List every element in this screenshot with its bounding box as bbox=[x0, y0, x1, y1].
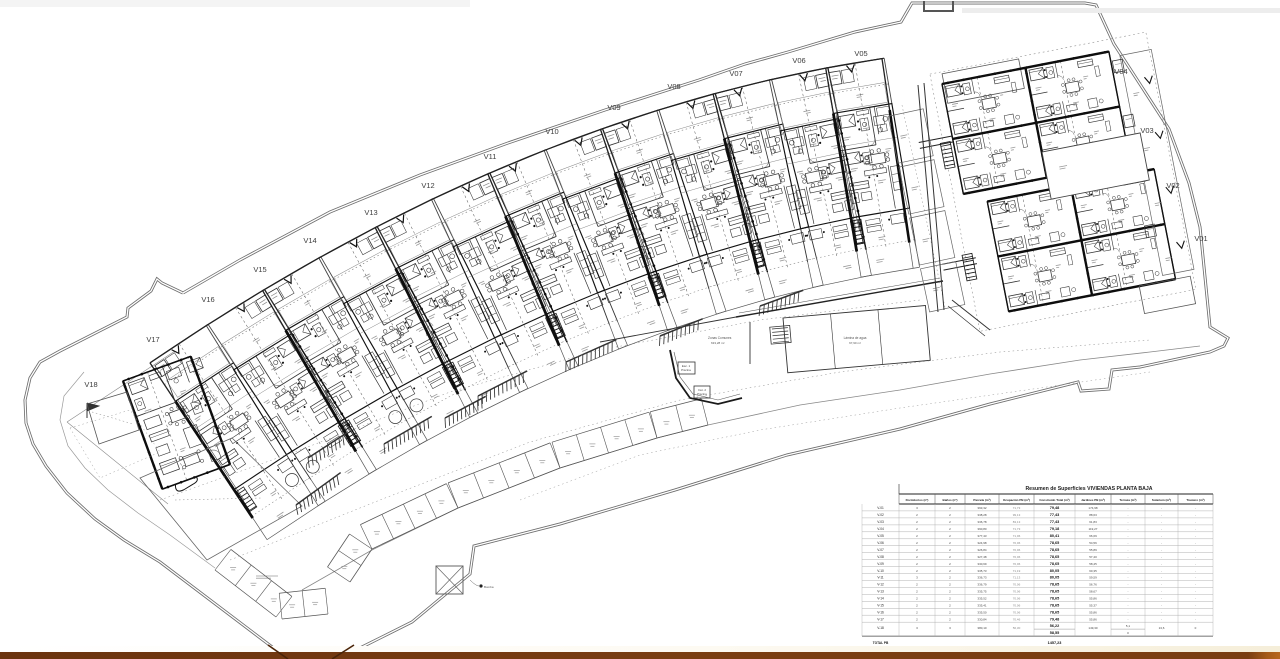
svg-text:119,27: 119,27 bbox=[1089, 527, 1098, 531]
svg-text:70,06: 70,06 bbox=[1013, 583, 1021, 587]
svg-text:58,55: 58,55 bbox=[1050, 631, 1060, 635]
svg-text:-: - bbox=[1128, 562, 1129, 566]
svg-text:Bomba: Bomba bbox=[484, 585, 494, 589]
svg-text:Baños (nº): Baños (nº) bbox=[943, 498, 958, 502]
svg-text:-: - bbox=[1161, 527, 1162, 531]
svg-text:149,30: 149,30 bbox=[1088, 626, 1098, 630]
svg-text:-: - bbox=[1161, 555, 1162, 559]
svg-text:335,50: 335,50 bbox=[977, 611, 987, 615]
svg-text:V-17: V-17 bbox=[877, 617, 884, 621]
svg-text:55,89: 55,89 bbox=[1089, 548, 1097, 552]
svg-text:Piscina: Piscina bbox=[681, 368, 691, 372]
svg-text:V15: V15 bbox=[253, 265, 266, 274]
svg-text:-: - bbox=[1128, 590, 1129, 594]
svg-text:V13: V13 bbox=[364, 208, 377, 217]
svg-text:-: - bbox=[1161, 541, 1162, 545]
svg-text:-: - bbox=[1195, 527, 1196, 531]
svg-text:-: - bbox=[1195, 569, 1196, 573]
svg-text:V12: V12 bbox=[421, 181, 434, 190]
svg-text:-: - bbox=[1195, 541, 1196, 545]
svg-text:326,84: 326,84 bbox=[977, 548, 987, 552]
svg-text:Solarium (m²): Solarium (m²) bbox=[1152, 498, 1171, 502]
svg-text:58,45: 58,45 bbox=[1089, 562, 1097, 566]
svg-text:54,56: 54,56 bbox=[1089, 541, 1097, 545]
svg-text:79,18: 79,18 bbox=[1050, 527, 1060, 531]
svg-text:-: - bbox=[1161, 590, 1162, 594]
svg-text:78,65: 78,65 bbox=[1050, 541, 1060, 545]
svg-text:56,30: 56,30 bbox=[1013, 626, 1021, 630]
svg-text:V18: V18 bbox=[84, 380, 97, 389]
svg-text:V-07: V-07 bbox=[877, 548, 884, 552]
svg-text:55,86: 55,86 bbox=[1089, 617, 1097, 621]
svg-text:-: - bbox=[1128, 604, 1129, 608]
svg-text:70,06: 70,06 bbox=[1013, 541, 1021, 545]
svg-text:V-14: V-14 bbox=[877, 597, 884, 601]
svg-text:78,65: 78,65 bbox=[1050, 548, 1060, 552]
svg-text:336,79: 336,79 bbox=[977, 583, 987, 587]
svg-text:13,6: 13,6 bbox=[1159, 626, 1165, 630]
svg-text:-: - bbox=[1128, 617, 1129, 621]
svg-text:58,67: 58,67 bbox=[1089, 590, 1097, 594]
svg-text:66,69: 66,69 bbox=[1089, 534, 1097, 538]
svg-text:-: - bbox=[1128, 576, 1129, 580]
svg-text:V-13: V-13 bbox=[877, 590, 884, 594]
svg-text:V11: V11 bbox=[484, 152, 497, 161]
svg-text:330,84: 330,84 bbox=[977, 617, 987, 621]
svg-text:Parcela (m²): Parcela (m²) bbox=[973, 498, 990, 502]
svg-text:V-06: V-06 bbox=[877, 541, 884, 545]
svg-text:70,06: 70,06 bbox=[1013, 562, 1021, 566]
svg-text:V-03: V-03 bbox=[877, 520, 884, 524]
svg-text:70,06: 70,06 bbox=[1013, 555, 1021, 559]
svg-text:V03: V03 bbox=[1140, 126, 1153, 135]
svg-text:83,13: 83,13 bbox=[1013, 520, 1021, 524]
svg-text:336,78: 336,78 bbox=[977, 520, 987, 524]
svg-text:Terraza (m²): Terraza (m²) bbox=[1120, 498, 1137, 502]
svg-text:-: - bbox=[1128, 597, 1129, 601]
svg-text:-: - bbox=[1128, 541, 1129, 545]
svg-text:390,80: 390,80 bbox=[977, 527, 987, 531]
svg-text:-: - bbox=[1195, 597, 1196, 601]
svg-text:-: - bbox=[1195, 576, 1196, 580]
svg-text:V-01: V-01 bbox=[877, 506, 884, 510]
svg-text:V01: V01 bbox=[1194, 234, 1207, 243]
svg-text:-: - bbox=[1161, 604, 1162, 608]
svg-text:78,65: 78,65 bbox=[1050, 562, 1060, 566]
svg-text:77,43: 77,43 bbox=[1050, 513, 1060, 517]
svg-text:-: - bbox=[1195, 604, 1196, 608]
svg-text:V-12: V-12 bbox=[877, 583, 884, 587]
svg-text:-: - bbox=[1128, 513, 1129, 517]
svg-text:71,19: 71,19 bbox=[1013, 569, 1021, 573]
svg-text:59,59: 59,59 bbox=[1089, 576, 1097, 580]
svg-text:71,73: 71,73 bbox=[1013, 506, 1021, 510]
svg-text:V16: V16 bbox=[201, 295, 214, 304]
svg-text:V14: V14 bbox=[303, 236, 316, 245]
svg-text:71,73: 71,73 bbox=[1013, 527, 1021, 531]
svg-text:-: - bbox=[1128, 506, 1129, 510]
svg-text:V-15: V-15 bbox=[877, 604, 884, 608]
svg-text:V-08: V-08 bbox=[877, 555, 884, 559]
svg-text:80,41: 80,41 bbox=[1050, 534, 1060, 538]
svg-text:V-10: V-10 bbox=[877, 569, 884, 573]
svg-text:335,73: 335,73 bbox=[977, 569, 987, 573]
svg-text:71,06: 71,06 bbox=[1013, 534, 1021, 538]
svg-text:335,75: 335,75 bbox=[977, 590, 987, 594]
svg-text:-: - bbox=[1161, 597, 1162, 601]
svg-text:56,76: 56,76 bbox=[1089, 583, 1097, 587]
svg-text:V07: V07 bbox=[729, 69, 742, 78]
svg-text:336,73: 336,73 bbox=[977, 576, 987, 580]
svg-text:V-05: V-05 bbox=[877, 534, 884, 538]
svg-text:335,52: 335,52 bbox=[977, 597, 987, 601]
svg-text:-: - bbox=[1195, 534, 1196, 538]
svg-text:V-18: V-18 bbox=[877, 626, 884, 630]
svg-text:1457,23: 1457,23 bbox=[1048, 641, 1062, 645]
svg-text:V06: V06 bbox=[792, 56, 805, 65]
svg-text:-: - bbox=[1128, 611, 1129, 615]
svg-text:79,48: 79,48 bbox=[1050, 617, 1060, 621]
svg-text:60,35: 60,35 bbox=[1089, 569, 1097, 573]
svg-text:78,65: 78,65 bbox=[1050, 597, 1060, 601]
svg-text:393,32: 393,32 bbox=[977, 506, 987, 510]
svg-text:-: - bbox=[1161, 611, 1162, 615]
svg-text:78,65: 78,65 bbox=[1050, 583, 1060, 587]
svg-text:-: - bbox=[1195, 555, 1196, 559]
svg-text:Construido Total (m²): Construido Total (m²) bbox=[1039, 498, 1069, 502]
svg-text:-: - bbox=[1161, 520, 1162, 524]
svg-text:70,46: 70,46 bbox=[1013, 617, 1021, 621]
svg-text:174,98: 174,98 bbox=[1088, 506, 1098, 510]
svg-text:V17: V17 bbox=[146, 335, 159, 344]
svg-text:377,43: 377,43 bbox=[977, 534, 987, 538]
svg-text:-: - bbox=[1195, 590, 1196, 594]
svg-text:V-16: V-16 bbox=[877, 611, 884, 615]
svg-text:V10: V10 bbox=[545, 127, 558, 136]
svg-text:-: - bbox=[1128, 569, 1129, 573]
svg-text:99,13: 99,13 bbox=[1013, 513, 1021, 517]
svg-text:-: - bbox=[1161, 548, 1162, 552]
svg-text:-: - bbox=[1161, 583, 1162, 587]
svg-text:-: - bbox=[1128, 534, 1129, 538]
svg-text:-: - bbox=[1128, 583, 1129, 587]
svg-text:633,28 m²: 633,28 m² bbox=[711, 341, 725, 345]
svg-text:327,48: 327,48 bbox=[977, 555, 987, 559]
svg-text:-: - bbox=[1195, 562, 1196, 566]
svg-text:-: - bbox=[1195, 583, 1196, 587]
svg-text:77,43: 77,43 bbox=[1050, 520, 1060, 524]
svg-text:88,63: 88,63 bbox=[1089, 513, 1097, 517]
svg-text:Ocupación PB (m²): Ocupación PB (m²) bbox=[1003, 498, 1030, 502]
svg-text:70,06: 70,06 bbox=[1013, 604, 1021, 608]
svg-text:-: - bbox=[1161, 617, 1162, 621]
svg-text:-: - bbox=[1161, 506, 1162, 510]
svg-text:55,86: 55,86 bbox=[1089, 597, 1097, 601]
svg-text:-: - bbox=[1161, 562, 1162, 566]
svg-text:78,65: 78,65 bbox=[1050, 604, 1060, 608]
svg-text:5,1: 5,1 bbox=[1126, 624, 1131, 628]
svg-text:Zonas Comunes: Zonas Comunes bbox=[708, 336, 732, 340]
svg-text:324,98: 324,98 bbox=[977, 541, 987, 545]
svg-text:80,05: 80,05 bbox=[1050, 569, 1060, 573]
svg-text:V-04: V-04 bbox=[877, 527, 884, 531]
svg-text:335,41: 335,41 bbox=[977, 604, 987, 608]
svg-text:V-02: V-02 bbox=[877, 513, 884, 517]
svg-text:-: - bbox=[1195, 520, 1196, 524]
svg-text:Trastero (m²): Trastero (m²) bbox=[1186, 498, 1204, 502]
svg-text:-: - bbox=[1195, 513, 1196, 517]
svg-text:V-09: V-09 bbox=[877, 562, 884, 566]
svg-text:-: - bbox=[1161, 513, 1162, 517]
svg-text:TOTAL PB: TOTAL PB bbox=[873, 641, 889, 645]
svg-text:V02: V02 bbox=[1166, 181, 1179, 190]
svg-text:-: - bbox=[1128, 520, 1129, 524]
svg-text:56,22: 56,22 bbox=[1050, 624, 1060, 628]
svg-text:-: - bbox=[1195, 506, 1196, 510]
svg-text:55,86: 55,86 bbox=[1089, 611, 1097, 615]
svg-text:-: - bbox=[1161, 569, 1162, 573]
svg-text:V08: V08 bbox=[667, 82, 680, 91]
svg-text:Lámina de agua: Lámina de agua bbox=[844, 336, 867, 340]
svg-text:330,69: 330,69 bbox=[977, 562, 987, 566]
svg-text:338,28: 338,28 bbox=[977, 513, 987, 517]
svg-text:V-11: V-11 bbox=[877, 576, 884, 580]
svg-text:80,05: 80,05 bbox=[1050, 576, 1060, 580]
svg-text:V04: V04 bbox=[1114, 67, 1127, 76]
svg-text:380,10: 380,10 bbox=[977, 626, 987, 630]
svg-text:-: - bbox=[1128, 548, 1129, 552]
svg-text:-: - bbox=[1195, 611, 1196, 615]
svg-text:-: - bbox=[1128, 555, 1129, 559]
svg-text:57,40: 57,40 bbox=[1089, 555, 1097, 559]
svg-text:61,83: 61,83 bbox=[1089, 520, 1097, 524]
svg-text:78,65: 78,65 bbox=[1050, 555, 1060, 559]
svg-text:-: - bbox=[1161, 576, 1162, 580]
svg-text:70,06: 70,06 bbox=[1013, 590, 1021, 594]
svg-text:-: - bbox=[1195, 617, 1196, 621]
svg-text:-: - bbox=[1161, 534, 1162, 538]
svg-text:Dormitorios (nº): Dormitorios (nº) bbox=[906, 498, 929, 502]
svg-text:V09: V09 bbox=[607, 103, 620, 112]
svg-text:71,13: 71,13 bbox=[1013, 576, 1021, 580]
svg-text:78,65: 78,65 bbox=[1050, 590, 1060, 594]
svg-text:78,65: 78,65 bbox=[1050, 611, 1060, 615]
svg-text:-: - bbox=[1128, 527, 1129, 531]
svg-text:70,06: 70,06 bbox=[1013, 611, 1021, 615]
svg-text:55,37: 55,37 bbox=[1089, 604, 1097, 608]
svg-text:-: - bbox=[1195, 548, 1196, 552]
svg-text:70,06: 70,06 bbox=[1013, 548, 1021, 552]
svg-text:67,90 m²: 67,90 m² bbox=[849, 341, 861, 345]
svg-text:Jardines PB (m²): Jardines PB (m²) bbox=[1081, 498, 1105, 502]
svg-text:70,06: 70,06 bbox=[1013, 597, 1021, 601]
svg-text:V05: V05 bbox=[854, 49, 867, 58]
svg-text:Resumen de Superficies VIVIEND: Resumen de Superficies VIVIENDAS PLANTA … bbox=[1025, 486, 1152, 492]
svg-text:79,48: 79,48 bbox=[1050, 506, 1060, 510]
